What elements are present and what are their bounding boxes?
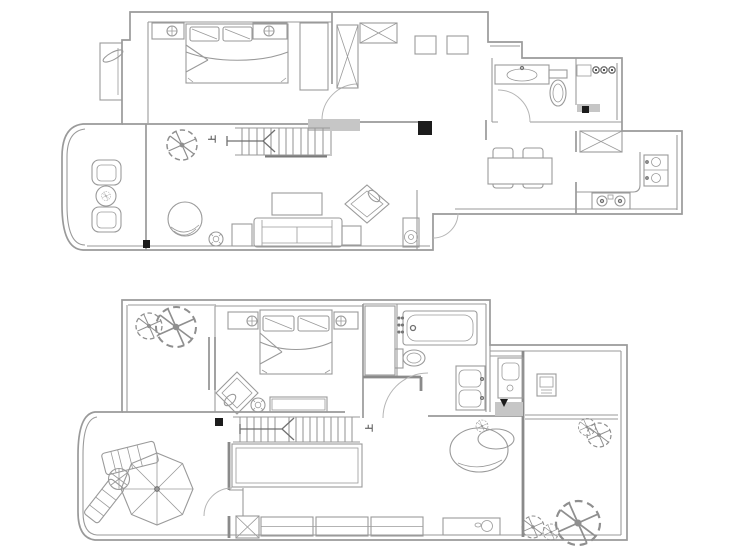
- stairs-label: 上: [207, 135, 217, 143]
- washing-machine: [498, 358, 523, 407]
- control-box: [537, 374, 556, 396]
- dining-door-arc: [433, 213, 458, 238]
- double-bed: [152, 23, 288, 83]
- refrigerator-x: [580, 131, 622, 152]
- dining-set: [488, 148, 552, 188]
- kitchen: [576, 131, 668, 209]
- terrace-door-arc: [204, 488, 232, 516]
- floor-plan-drawing: 上: [0, 0, 740, 555]
- speaker-icon: [209, 232, 223, 246]
- bedroom-window: [209, 337, 215, 390]
- sofa: [254, 218, 342, 247]
- hall-cabinets: [415, 36, 468, 54]
- tree-icon: [579, 419, 596, 436]
- platform: [232, 444, 362, 487]
- side-table: [232, 224, 252, 246]
- column-small: [215, 418, 223, 426]
- side-table: [342, 226, 361, 245]
- kitchen-counter: [576, 152, 640, 192]
- lounge-chair: [83, 478, 124, 524]
- direction-arrow-icon: [227, 130, 275, 152]
- terrace-trees: [136, 307, 196, 347]
- shoe-cabinet-x: [360, 23, 397, 43]
- upper-floor-plan: 上: [62, 12, 682, 250]
- flower-icon: [102, 192, 111, 201]
- stairs-label: 上: [364, 424, 374, 432]
- table-lamp-icon: [264, 26, 274, 36]
- wardrobe: [300, 23, 328, 90]
- swivel-chair: [168, 202, 202, 236]
- table-lamp-icon: [247, 316, 257, 326]
- linen-cabinet-x: [337, 25, 358, 88]
- shower: [577, 65, 615, 113]
- right-terrace-plants: [522, 419, 611, 546]
- double-sink: [644, 155, 668, 186]
- toilet: [395, 349, 425, 368]
- vanity-sink: [495, 65, 549, 84]
- bedroom-bench: [270, 397, 327, 412]
- stairs-up: 上: [207, 128, 330, 157]
- bathroom-door-arc: [498, 90, 530, 122]
- double-bed: [228, 310, 358, 374]
- double-vanity: [456, 366, 485, 410]
- flower-icon: [556, 501, 600, 545]
- nightstand: [228, 312, 258, 329]
- lower-floor-plan: 上: [78, 300, 627, 545]
- column: [418, 121, 432, 135]
- bay-window-nook: [92, 160, 121, 232]
- accent-chair: [345, 185, 389, 223]
- plant-icon: [167, 130, 197, 160]
- lounge-chair: [101, 441, 159, 475]
- bathroom: [395, 311, 485, 410]
- floor-plan-canvas: 上: [0, 0, 740, 555]
- direction-arrow-icon: [240, 418, 294, 440]
- stove: [592, 193, 630, 209]
- flower-icon: [476, 420, 488, 432]
- speaker-icon: [251, 398, 265, 412]
- parasol-terrace: [83, 418, 223, 525]
- closet: [365, 306, 395, 375]
- stairs-up: 上: [233, 417, 374, 442]
- balcony-decor: [102, 48, 125, 65]
- tree-icon: [543, 524, 559, 540]
- terrace-bench: [443, 518, 500, 535]
- bathroom: [495, 65, 615, 113]
- round-daybed: [450, 420, 514, 472]
- stair-landing: [308, 119, 360, 131]
- dining-table: [488, 158, 552, 184]
- balcony: [100, 43, 124, 100]
- table-lamp-icon: [336, 316, 346, 326]
- bedroom-door-arc: [322, 84, 358, 120]
- table-lamp-icon: [167, 26, 177, 36]
- toilet: [549, 70, 567, 106]
- bathtub: [398, 311, 477, 345]
- tree-icon: [587, 423, 611, 447]
- column-small: [143, 240, 150, 248]
- coffee-table: [272, 193, 322, 215]
- interior-walls: [122, 304, 618, 538]
